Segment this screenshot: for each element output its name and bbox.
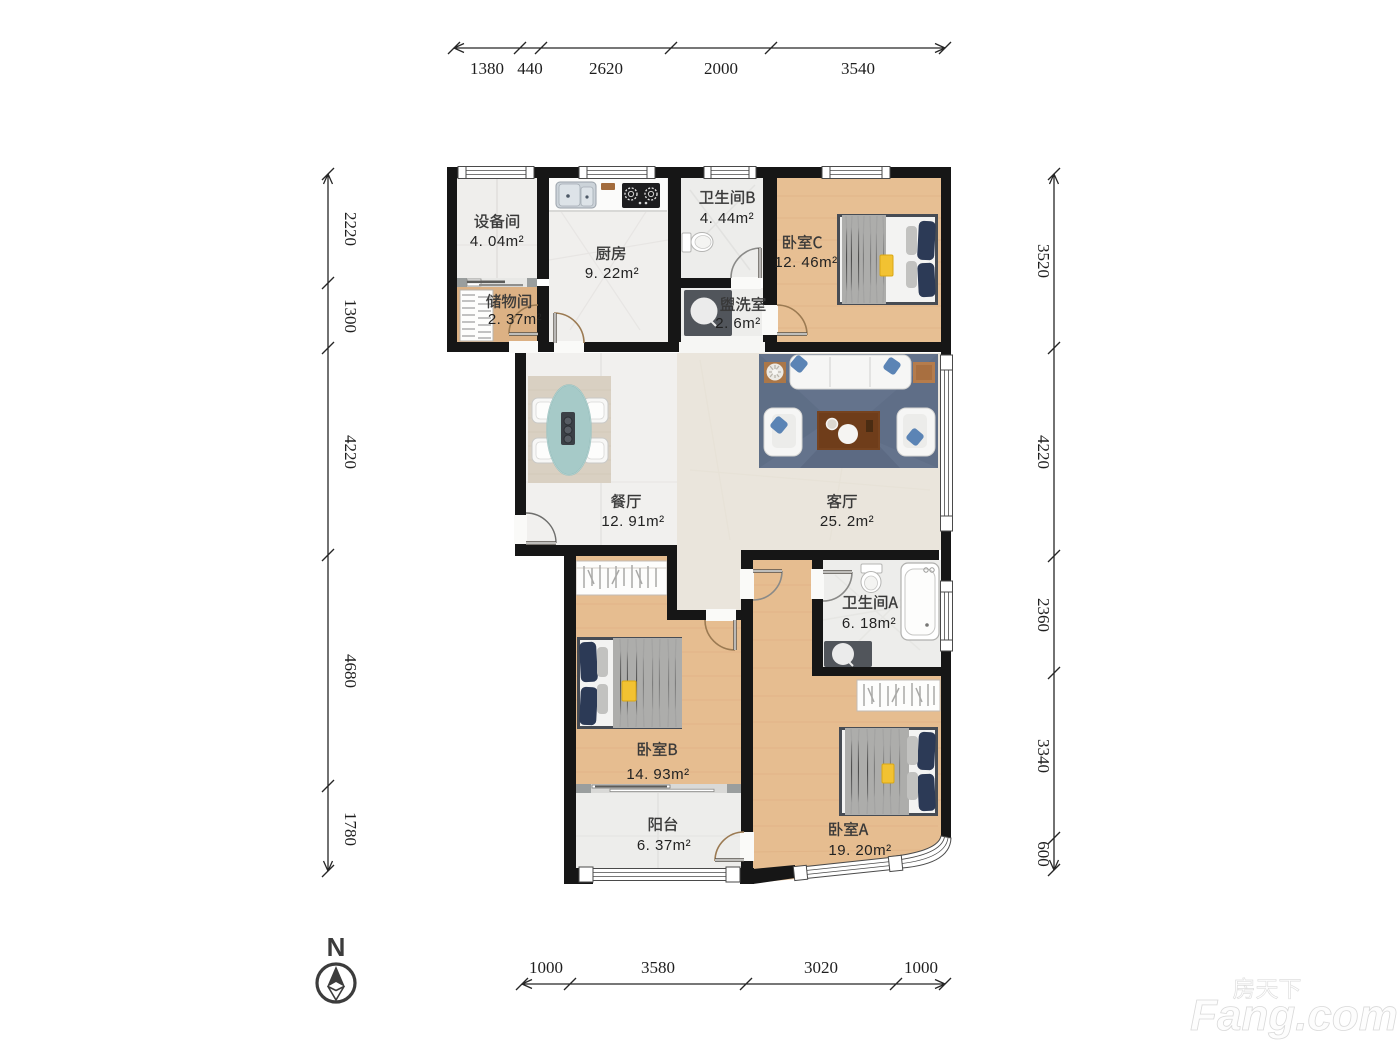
svg-text:3340: 3340 bbox=[1034, 739, 1053, 773]
svg-text:4680: 4680 bbox=[341, 654, 360, 688]
svg-text:Fang.com: Fang.com bbox=[1190, 991, 1398, 1040]
svg-text:9. 22m²: 9. 22m² bbox=[585, 265, 639, 282]
svg-text:1780: 1780 bbox=[341, 812, 360, 846]
svg-text:2. 37m²: 2. 37m² bbox=[488, 311, 542, 328]
svg-text:2. 6m²: 2. 6m² bbox=[715, 315, 761, 332]
svg-text:3520: 3520 bbox=[1034, 244, 1053, 278]
svg-text:12. 91m²: 12. 91m² bbox=[601, 513, 664, 530]
svg-text:440: 440 bbox=[517, 59, 543, 78]
svg-text:1000: 1000 bbox=[529, 958, 563, 977]
svg-text:2620: 2620 bbox=[589, 59, 623, 78]
svg-text:6. 37m²: 6. 37m² bbox=[637, 837, 691, 854]
svg-text:25. 2m²: 25. 2m² bbox=[820, 513, 874, 530]
svg-text:1300: 1300 bbox=[341, 299, 360, 333]
svg-text:3020: 3020 bbox=[804, 958, 838, 977]
svg-text:4. 44m²: 4. 44m² bbox=[700, 210, 754, 227]
svg-text:6. 18m²: 6. 18m² bbox=[842, 615, 896, 632]
svg-text:4. 04m²: 4. 04m² bbox=[470, 233, 524, 250]
svg-text:1000: 1000 bbox=[904, 958, 938, 977]
svg-text:14. 93m²: 14. 93m² bbox=[626, 766, 689, 783]
svg-text:N: N bbox=[327, 932, 346, 962]
svg-text:600: 600 bbox=[1034, 841, 1053, 867]
svg-text:4220: 4220 bbox=[341, 435, 360, 469]
svg-text:4220: 4220 bbox=[1034, 435, 1053, 469]
svg-text:19. 20m²: 19. 20m² bbox=[828, 842, 891, 859]
svg-text:2360: 2360 bbox=[1034, 598, 1053, 632]
svg-text:3580: 3580 bbox=[641, 958, 675, 977]
svg-text:1380: 1380 bbox=[470, 59, 504, 78]
svg-text:3540: 3540 bbox=[841, 59, 875, 78]
svg-text:2000: 2000 bbox=[704, 59, 738, 78]
svg-text:2220: 2220 bbox=[341, 212, 360, 246]
svg-text:12. 46m²: 12. 46m² bbox=[774, 254, 837, 271]
